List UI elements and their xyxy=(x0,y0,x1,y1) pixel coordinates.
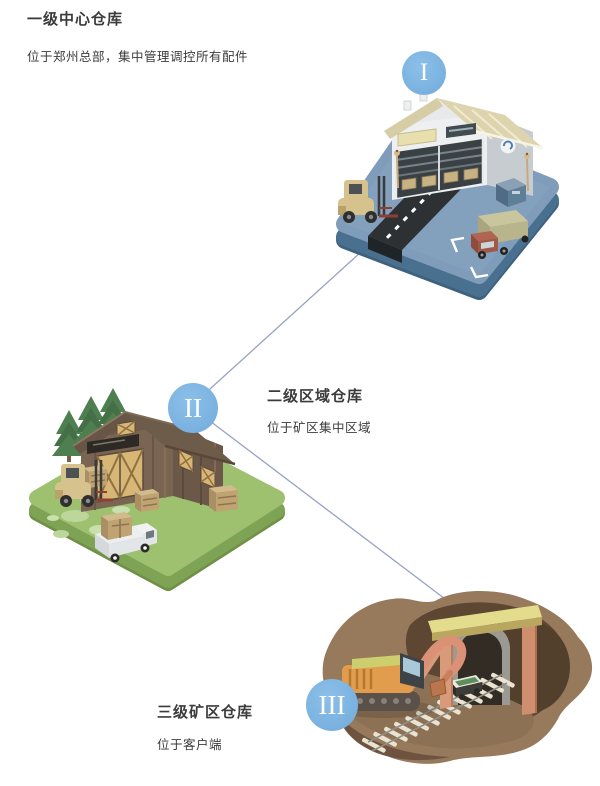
level3-node-circle: III xyxy=(306,679,358,731)
crate-icon xyxy=(209,485,238,512)
roof-vent xyxy=(404,101,411,110)
logistics-diagram: 一级中心仓库 位于郑州总部，集中管理调控所有配件 二级区域仓库 位于矿区集中区域… xyxy=(0,0,600,786)
level3-label: 三级矿区仓库 位于客户端 xyxy=(157,701,253,753)
level2-title: 二级区域仓库 xyxy=(267,385,371,406)
regional-barn-warehouse-illustration xyxy=(25,388,293,600)
level3-subtitle: 位于客户端 xyxy=(157,734,253,753)
crate-icon xyxy=(135,489,159,512)
level1-subtitle: 位于郑州总部，集中管理调控所有配件 xyxy=(27,46,248,65)
level1-label: 一级中心仓库 位于郑州总部，集中管理调控所有配件 xyxy=(27,8,248,65)
mine-site-warehouse-illustration xyxy=(300,585,600,770)
level1-numeral: I xyxy=(420,59,428,87)
level1-title: 一级中心仓库 xyxy=(27,8,248,29)
level2-node-circle: II xyxy=(168,383,218,433)
level3-title: 三级矿区仓库 xyxy=(157,701,253,722)
headquarters-warehouse-illustration xyxy=(328,88,600,303)
level3-numeral: III xyxy=(319,690,346,721)
level2-subtitle: 位于矿区集中区域 xyxy=(267,417,371,436)
level2-numeral: II xyxy=(184,393,202,424)
level1-node-circle: I xyxy=(402,51,446,95)
level2-label: 二级区域仓库 位于矿区集中区域 xyxy=(267,385,371,436)
